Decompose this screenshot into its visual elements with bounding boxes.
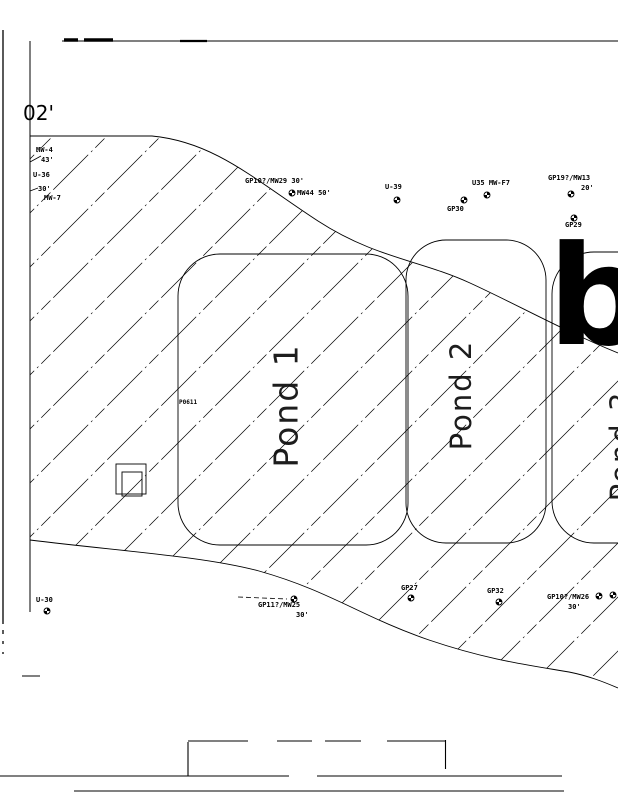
label-gp11-mw25: GP11?/MW25	[258, 602, 300, 609]
well-marker-icon	[394, 197, 400, 203]
label-20ft: 20'	[581, 185, 594, 192]
scanned-site-plan-page: { "page": { "background": "#ffffff", "in…	[0, 0, 618, 800]
label-mw4: MW-4	[36, 147, 53, 154]
label-p0611: P0611	[179, 400, 197, 406]
label-mw7: MW-7	[44, 195, 61, 202]
label-gp32: GP32	[487, 588, 504, 595]
pond-1-label: Pond 1	[267, 285, 306, 525]
label-gp10-mw26: GP10?/MW26	[547, 594, 589, 601]
label-mw44: MW44 50'	[297, 190, 331, 197]
label-43ft: 43'	[41, 157, 54, 164]
label-gp10-mw29: GP10?/MW29 30'	[245, 178, 304, 185]
label-u35-mwf7: U35 MW-F7	[472, 180, 510, 187]
well-marker-icon	[461, 197, 467, 203]
label-gp19-mw13: GP19?/MW13	[548, 175, 590, 182]
label-02ft: 02'	[23, 103, 54, 124]
well-marker-icon	[408, 595, 414, 601]
well-marker-icon	[484, 192, 490, 198]
label-gp27: GP27	[401, 585, 418, 592]
label-u36: U-36	[33, 172, 50, 179]
label-30ft-c: 30'	[568, 604, 581, 611]
hatched-region	[30, 136, 618, 688]
well-marker-icon	[596, 593, 602, 599]
label-u39: U-39	[385, 184, 402, 191]
pond-2-label: Pond 2	[444, 275, 478, 515]
label-gp30: GP30	[447, 206, 464, 213]
well-marker-icon	[610, 592, 616, 598]
label-u30: U-30	[36, 597, 53, 604]
well-marker-icon	[44, 608, 50, 614]
bottom-linework	[0, 740, 564, 791]
label-30ft-b: 30'	[296, 612, 309, 619]
well-marker-icon	[289, 190, 295, 196]
big-letter-b: b	[548, 228, 618, 366]
well-marker-icon	[568, 191, 574, 197]
well-marker-icon	[496, 599, 502, 605]
site-plan-canvas	[0, 0, 618, 800]
label-30ft-a: 30'	[38, 186, 51, 193]
